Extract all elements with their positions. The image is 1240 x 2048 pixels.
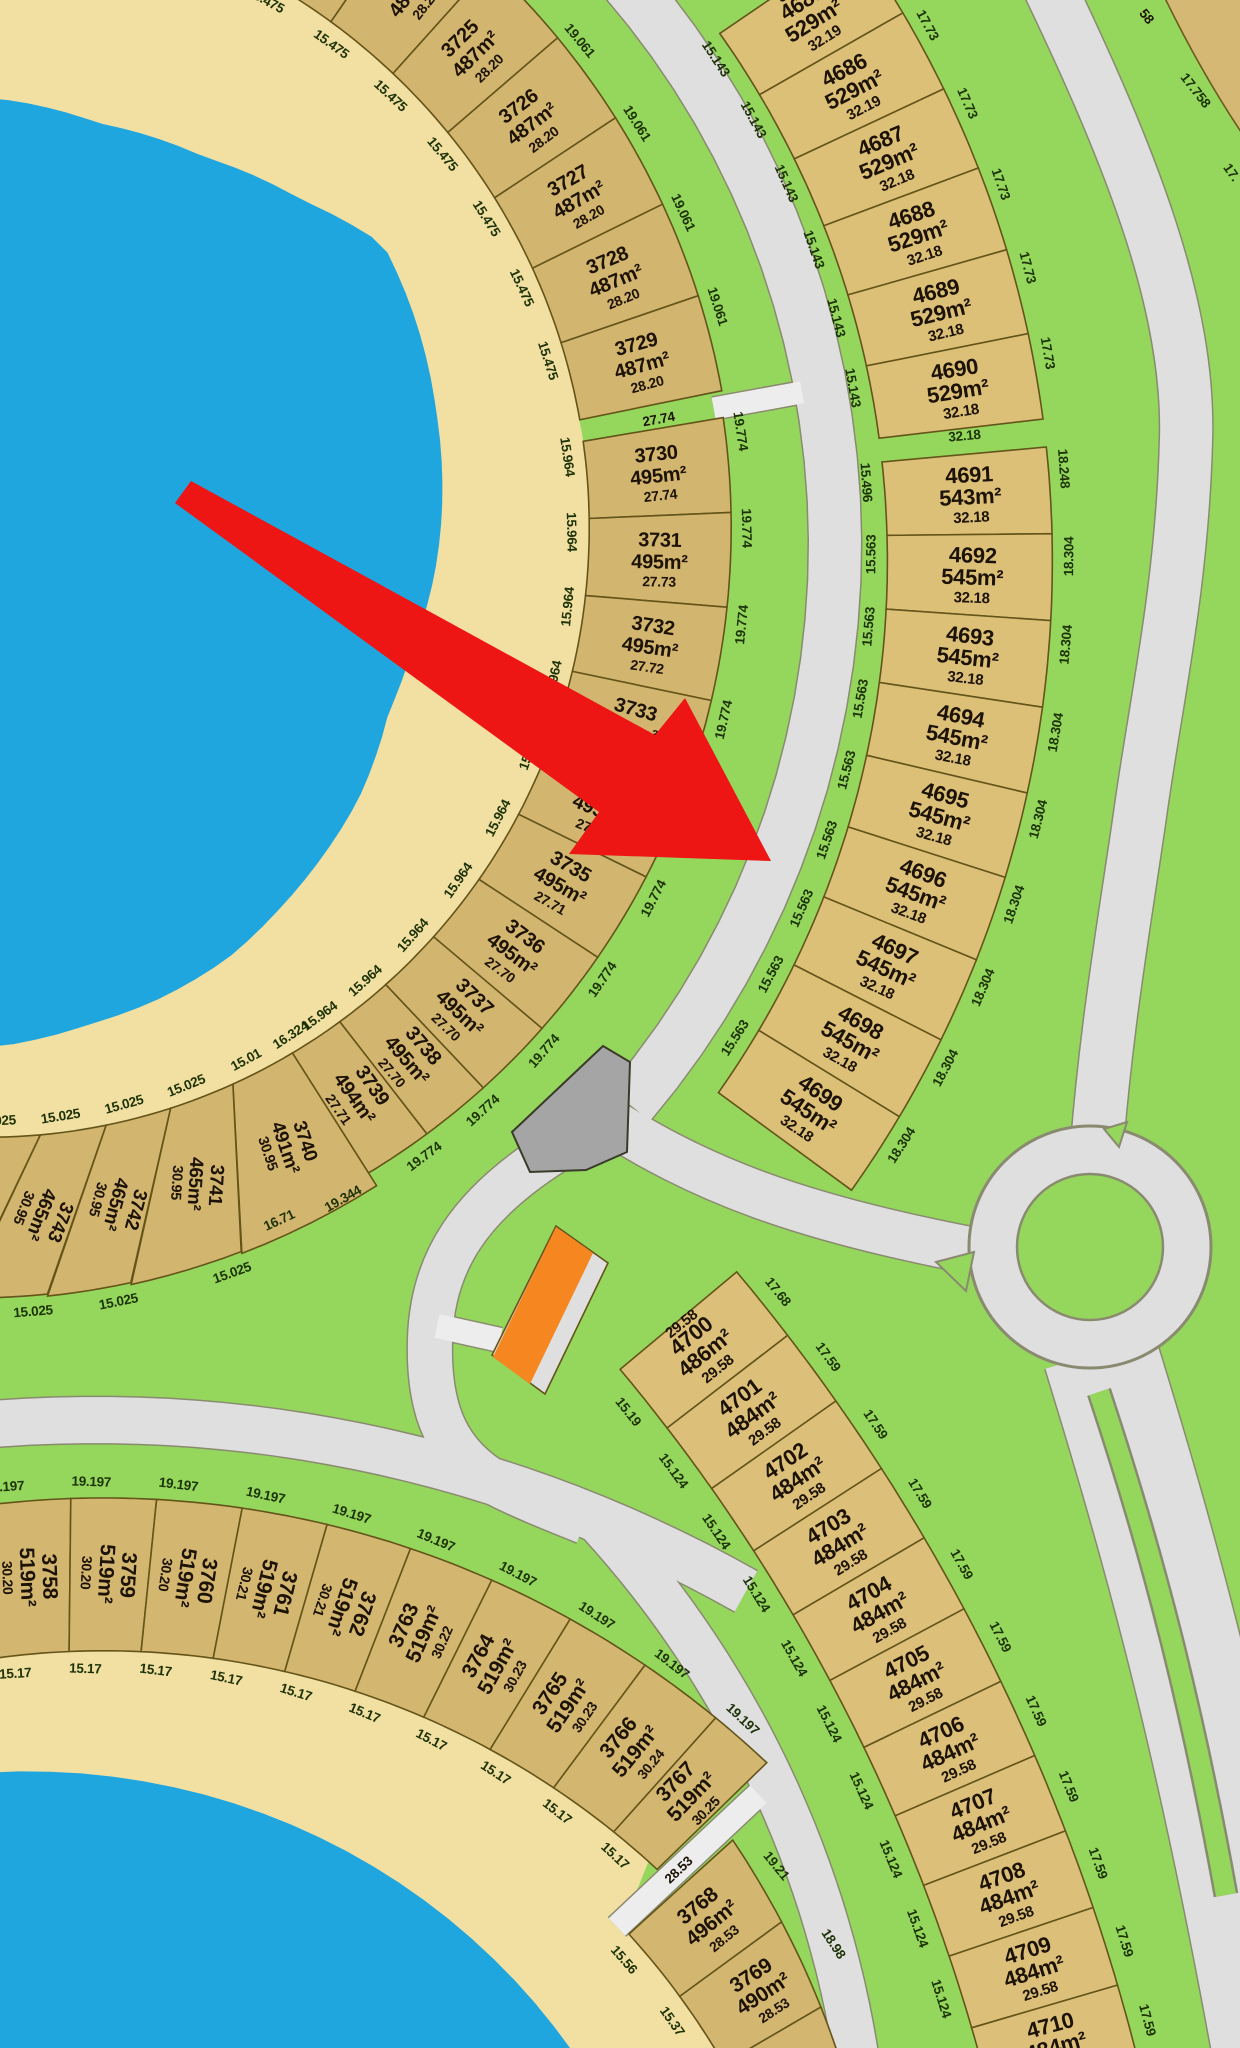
svg-text:15.025: 15.025: [0, 1112, 17, 1129]
svg-text:15.17: 15.17: [0, 1665, 32, 1682]
svg-text:15.964: 15.964: [564, 512, 580, 553]
svg-text:19.197: 19.197: [71, 1473, 111, 1489]
svg-text:495m²: 495m²: [631, 551, 688, 574]
svg-text:19.197: 19.197: [0, 1478, 25, 1495]
svg-text:30.20: 30.20: [0, 1561, 16, 1596]
svg-text:545m²: 545m²: [941, 564, 1004, 591]
svg-text:18.248: 18.248: [1055, 448, 1073, 489]
svg-text:32.18: 32.18: [948, 427, 982, 445]
svg-text:519m²: 519m²: [93, 1543, 119, 1604]
svg-text:18.304: 18.304: [1061, 536, 1076, 576]
svg-text:30.95: 30.95: [167, 1165, 185, 1201]
svg-text:32.18: 32.18: [953, 508, 990, 527]
svg-text:15.563: 15.563: [863, 534, 878, 574]
svg-text:15.496: 15.496: [858, 462, 876, 503]
svg-text:3741: 3741: [204, 1164, 228, 1207]
svg-text:32.18: 32.18: [953, 589, 990, 607]
svg-text:19.774: 19.774: [739, 508, 755, 549]
svg-text:3731: 3731: [638, 529, 682, 552]
svg-text:3758: 3758: [37, 1553, 62, 1600]
svg-text:543m²: 543m²: [939, 483, 1002, 511]
svg-text:15.17: 15.17: [69, 1660, 102, 1676]
svg-text:30.20: 30.20: [77, 1555, 95, 1590]
svg-text:465m²: 465m²: [182, 1156, 206, 1211]
svg-text:27.73: 27.73: [642, 573, 676, 590]
svg-text:519m²: 519m²: [15, 1547, 40, 1607]
